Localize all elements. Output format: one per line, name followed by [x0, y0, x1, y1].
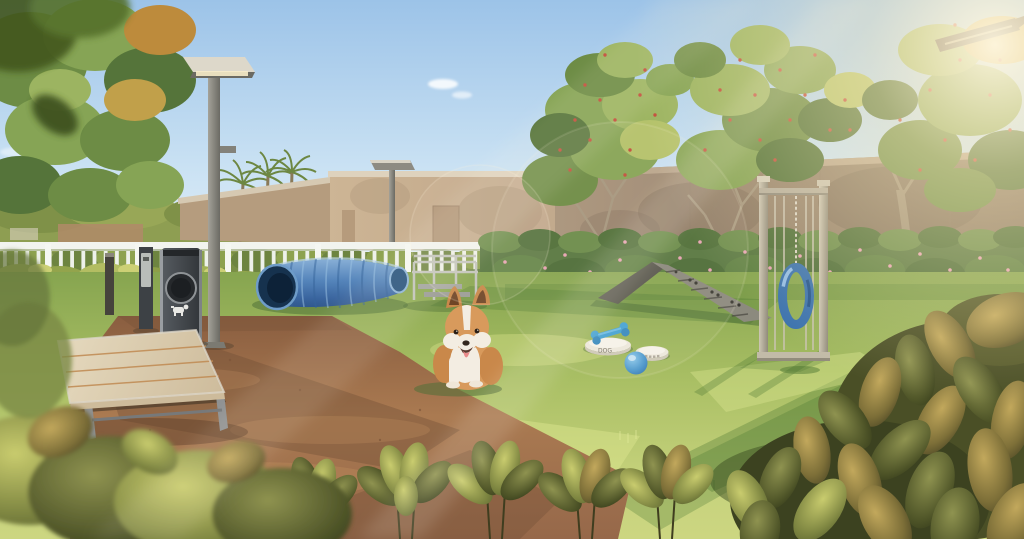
render-canvas: DOG — [0, 0, 1024, 539]
sun-glow — [0, 0, 1024, 539]
dog-park-render: DOG — [0, 0, 1024, 539]
